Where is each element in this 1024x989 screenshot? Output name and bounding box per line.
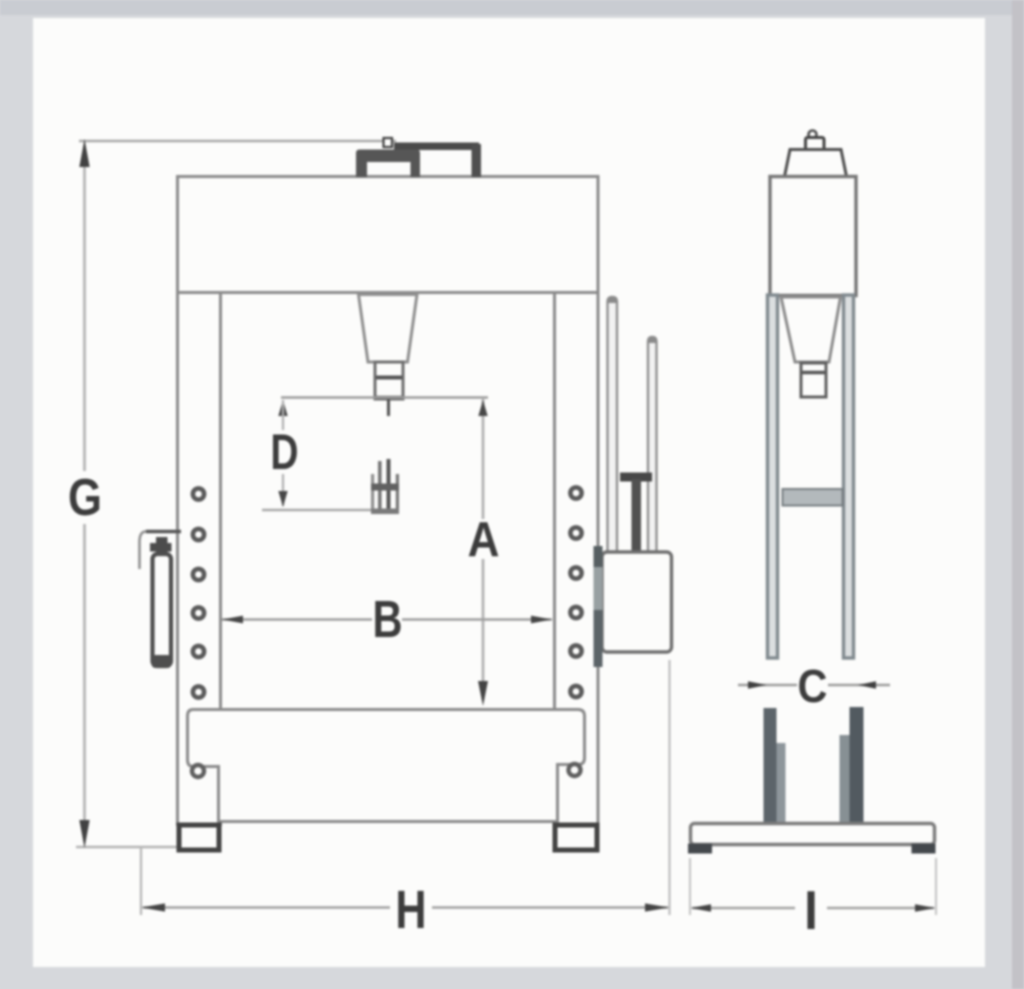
svg-text:C: C (798, 661, 828, 713)
svg-text:H: H (395, 881, 426, 941)
svg-text:D: D (270, 423, 298, 480)
svg-text:G: G (68, 470, 102, 527)
svg-text:I: I (804, 881, 818, 942)
svg-text:B: B (372, 590, 402, 649)
svg-text:A: A (468, 512, 500, 567)
